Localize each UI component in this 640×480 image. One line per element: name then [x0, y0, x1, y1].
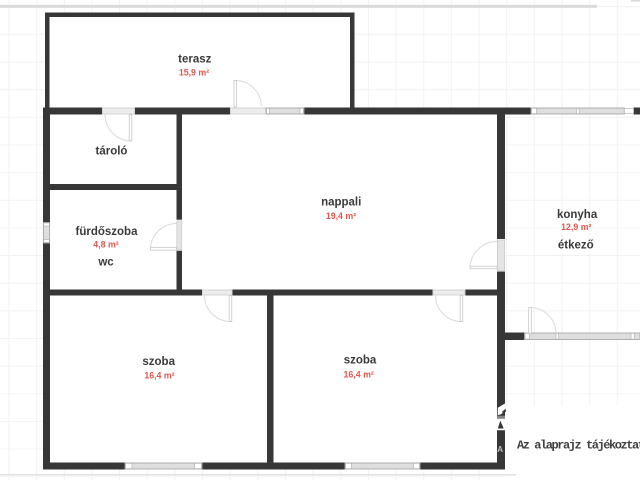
svg-text:Az alaprajz tájékoztató jelleg: Az alaprajz tájékoztató jellegű. — [517, 438, 640, 452]
svg-text:szoba: szoba — [344, 354, 377, 366]
svg-text:12,9 m²: 12,9 m² — [561, 222, 591, 232]
svg-text:4,8 m²: 4,8 m² — [93, 240, 118, 250]
svg-text:wc: wc — [97, 257, 114, 269]
svg-text:tároló: tároló — [96, 146, 128, 158]
svg-text:16,4 m²: 16,4 m² — [144, 371, 174, 381]
svg-text:nappali: nappali — [321, 196, 361, 208]
svg-text:15,9 m²: 15,9 m² — [179, 68, 209, 78]
svg-text:szoba: szoba — [142, 356, 175, 368]
svg-text:fürdőszoba: fürdőszoba — [76, 226, 139, 238]
svg-text:16,4 m²: 16,4 m² — [344, 370, 374, 380]
svg-text:étkező: étkező — [558, 240, 594, 252]
svg-text:terasz: terasz — [178, 54, 211, 66]
svg-text:konyha: konyha — [557, 209, 598, 221]
svg-text:19,4 m²: 19,4 m² — [326, 211, 356, 221]
svg-text:A: A — [497, 445, 503, 454]
